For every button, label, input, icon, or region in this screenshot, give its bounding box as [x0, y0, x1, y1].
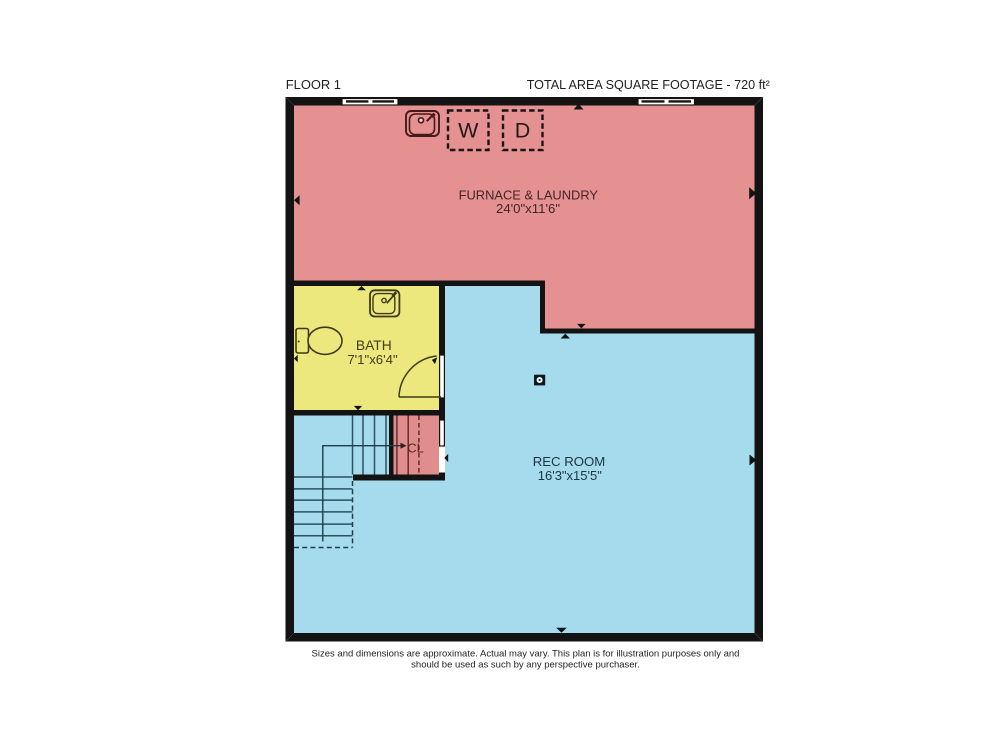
svg-text:Sizes and dimensions are appro: Sizes and dimensions are approximate. Ac…	[312, 649, 740, 660]
svg-text:CL: CL	[407, 441, 424, 456]
svg-text:W: W	[458, 118, 479, 142]
svg-text:should be used as such by any: should be used as such by any perspectiv…	[411, 660, 640, 671]
svg-text:FLOOR 1: FLOOR 1	[286, 77, 341, 92]
svg-text:REC ROOM: REC ROOM	[533, 454, 606, 469]
svg-text:TOTAL AREA SQUARE FOOTAGE - 72: TOTAL AREA SQUARE FOOTAGE - 720 ft²	[527, 78, 770, 92]
svg-text:D: D	[515, 118, 531, 142]
svg-text:7'1"x6'4": 7'1"x6'4"	[347, 352, 398, 367]
svg-text:24'0"x11'6": 24'0"x11'6"	[496, 201, 560, 216]
svg-text:BATH: BATH	[356, 338, 392, 353]
svg-text:16'3"x15'5": 16'3"x15'5"	[538, 468, 602, 483]
